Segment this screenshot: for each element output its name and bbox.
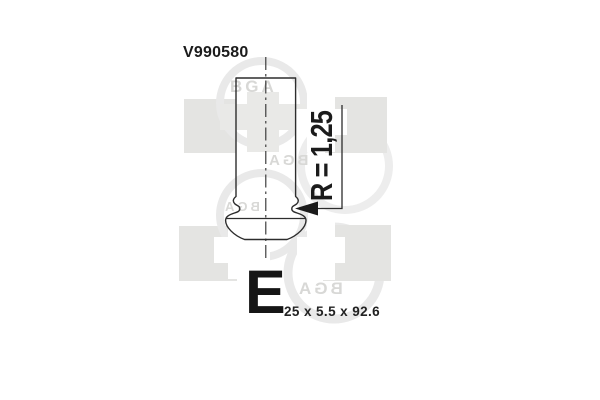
radius-annotation: R = 1,25	[304, 111, 340, 201]
size-class-letter: E	[245, 262, 286, 323]
valve-catalog-figure: BGA BGA BGA BGA V990580 R = 1,25 E 25 x …	[0, 0, 600, 400]
dimensions-text: 25 x 5.5 x 92.6	[284, 304, 380, 319]
part-number: V990580	[183, 44, 248, 62]
valve-technical-drawing	[0, 0, 600, 400]
